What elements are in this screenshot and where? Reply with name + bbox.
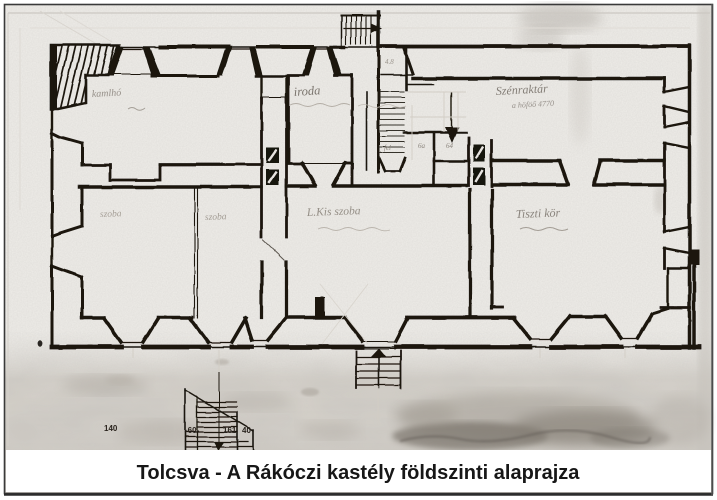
svg-text:Tolcsva - A Rákóczi kastély fö: Tolcsva - A Rákóczi kastély földszinti a… [137, 462, 581, 484]
svg-text:szoba: szoba [205, 212, 227, 223]
svg-text:40: 40 [242, 426, 251, 435]
svg-text:6a: 6a [418, 142, 426, 150]
svg-text:kamlhó: kamlhó [92, 87, 122, 100]
svg-text:-60-: -60- [185, 426, 200, 435]
svg-text:Tiszti kör: Tiszti kör [516, 205, 561, 221]
svg-text:szoba: szoba [100, 209, 122, 220]
svg-text:fel: fel [384, 144, 391, 152]
svg-text:161: 161 [223, 426, 237, 435]
svg-text:4.8: 4.8 [385, 58, 394, 66]
svg-text:Szénraktár: Szénraktár [495, 81, 548, 98]
svg-text:140: 140 [104, 424, 118, 433]
svg-text:64: 64 [446, 142, 454, 150]
svg-text:L.Kis szoba: L.Kis szoba [306, 205, 361, 219]
svg-text:iroda: iroda [293, 83, 321, 99]
